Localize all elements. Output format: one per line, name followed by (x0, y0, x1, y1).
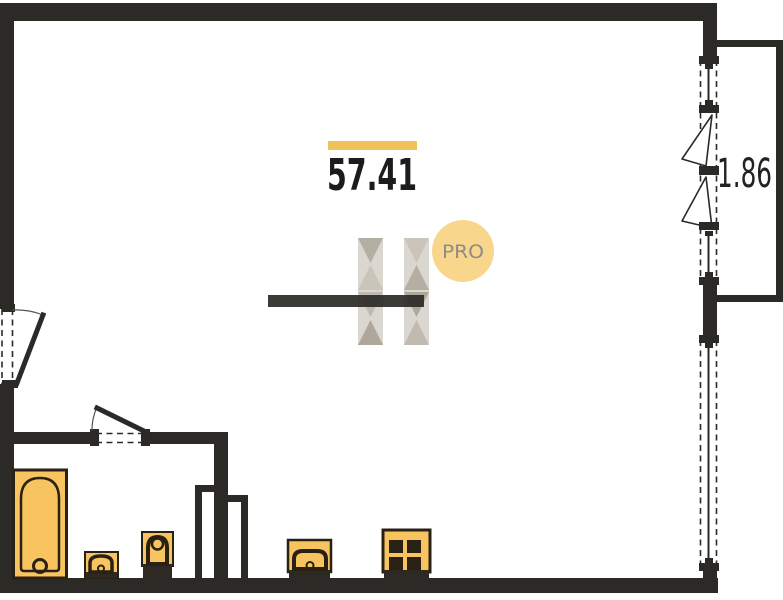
toilet (142, 532, 173, 578)
stove-base (384, 570, 429, 578)
bathroom-wall-vertical (214, 432, 228, 578)
watermark-pro-badge: PRO (432, 220, 494, 282)
bathroom-door (90, 407, 150, 446)
door-leaf (97, 408, 146, 432)
wall-top (0, 3, 717, 21)
door-swing-arc (92, 407, 97, 431)
shaft-right-side (241, 495, 248, 578)
wall-stub-horizontal (268, 295, 424, 307)
window-sash-open-lower (682, 177, 712, 228)
floor-plan: PRO 57.41 1.86 (0, 0, 783, 600)
bathroom-wall-left-segment (0, 432, 92, 444)
logo-column-left (358, 238, 383, 345)
main-area-label: 57.41 (327, 150, 417, 201)
wall-right-bottom-corner (703, 571, 717, 593)
fixed-window-assembly (699, 335, 719, 571)
floor-plan-canvas: PRO 57.41 1.86 (0, 0, 783, 600)
door-leaf (17, 315, 43, 383)
bathtub (14, 470, 67, 578)
stove (383, 530, 430, 578)
area-accent-bar (328, 141, 417, 150)
watermark-logo-letter-h (358, 238, 429, 345)
balcony-wall-top (717, 40, 783, 47)
door-hinge-block (90, 429, 99, 446)
balcony-wall-right (776, 40, 783, 302)
pro-badge-text: PRO (442, 241, 484, 263)
kitchen-sink-base (289, 570, 330, 578)
window-sash-open-upper (682, 115, 712, 166)
door-hinge-block (2, 304, 15, 312)
shaft-left-side (195, 485, 202, 578)
wall-right-top-pier (703, 21, 717, 58)
toilet-tank (143, 564, 172, 578)
washbasin (85, 552, 118, 578)
kitchen-sink (288, 540, 331, 578)
main-area-label-group: 57.41 (327, 141, 417, 201)
wall-left-upper (0, 3, 14, 309)
balcony-area-label: 1.86 (717, 151, 772, 197)
wall-left-lower (0, 384, 14, 593)
wall-right-mid-pier (703, 285, 717, 337)
entry-door (2, 304, 43, 388)
logo-column-right (404, 238, 429, 345)
balcony-window-assembly (682, 56, 719, 285)
wall-bottom (0, 578, 718, 593)
door-swing-arc (12, 310, 43, 315)
balcony-wall-bottom (717, 295, 783, 302)
